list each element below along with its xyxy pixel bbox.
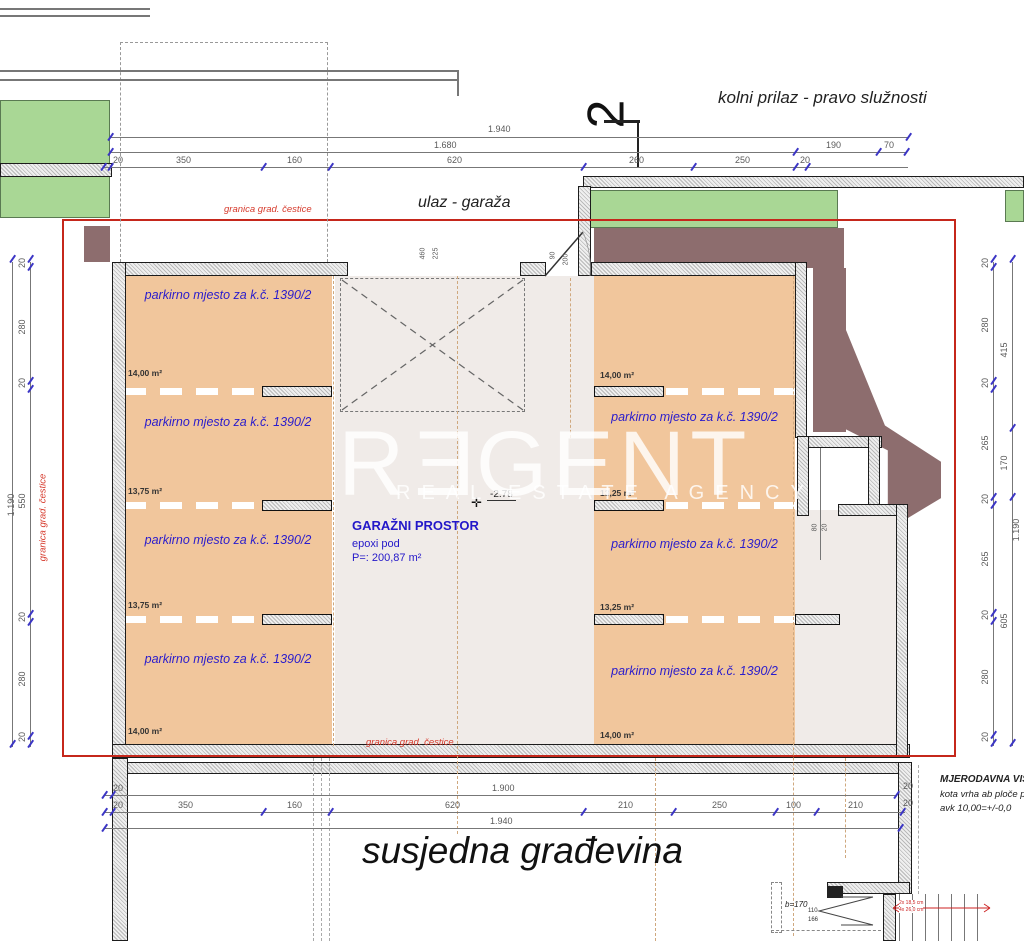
dim-label: 200 [563,245,570,275]
note-kota: kota vrha ab ploče pr [940,789,1024,800]
plot-boundary-bottom [62,755,956,757]
axis-line [457,276,458,834]
neighbor-wall-top-right [583,176,1024,188]
hidden-wall-dashed [329,758,330,941]
dim-label: 620 [445,800,460,810]
stall-area-label: 13,25 m² [600,602,634,612]
dim-line [1012,262,1013,746]
dim-label: 280 [17,312,27,342]
dim-label: 20 [17,602,27,632]
dim-label: 20 [980,600,990,630]
stall-area-label: 13,25 m² [600,488,634,498]
garage-area: P=: 200,87 m² [352,552,421,564]
ulaz-garaza-label: ulaz - garaža [418,194,511,212]
divider-wall-stub [262,614,332,625]
stall-area-label: 14,00 m² [128,368,162,378]
dim-label: 1.190 [1011,515,1021,545]
dim-line [104,812,905,813]
hidden-wall-dashed [321,758,322,941]
wall-bottom-second [112,762,910,774]
divider-wall-stub [795,614,840,625]
wall-top-right [591,262,797,276]
stair-label-n1: 110 [808,908,818,914]
section-marker-line [604,120,640,123]
elevation-marker-icon: ✛ [471,495,482,511]
dim-label: 280 [17,664,27,694]
stair-label-b: b=170 [785,900,807,909]
garage-lower-right-floor [795,510,896,746]
dim-label: 250 [712,800,727,810]
dim-label: 1.940 [488,124,511,134]
dim-line [104,795,896,796]
reference-line [820,448,821,560]
dim-label: 20 [17,368,27,398]
dim-label: 210 [848,800,863,810]
site-line [0,15,150,17]
divider-wall-stub [262,386,332,397]
dim-line [110,137,908,138]
dim-label: 20 [903,798,913,808]
stall-area-label: 14,00 m² [600,370,634,380]
stall-area-label: 13,75 m² [128,486,162,496]
plot-boundary-right [954,219,956,757]
axis-line [333,276,334,746]
dim-label: 265 [980,544,990,574]
neighbor-wall-left [0,163,112,177]
dim-label: 350 [178,800,193,810]
section-marker-2: 2 [576,100,636,129]
dim-label: 265 [980,428,990,458]
divider-wall-stub [594,500,664,511]
garage-door-zone-cross [340,278,525,412]
wall-right-column [795,262,807,438]
divider-wall-stub [594,386,664,397]
dim-line [30,262,31,747]
lawn-right [588,190,838,228]
dim-label: 170 [999,448,1009,478]
dim-label: 1.940 [490,816,513,826]
wall-top-left [112,262,348,276]
stall-area-label: 13,75 m² [128,600,162,610]
dim-label: 20 [980,368,990,398]
dim-label: 80 [812,513,819,543]
site-line [0,70,458,72]
dim-label: 20 [980,248,990,278]
divider-wall-stub [594,614,664,625]
parking-label: parkirno mjesto za k.č. 1390/2 [124,533,332,547]
dim-label: 1.900 [492,783,515,793]
dim-label: 280 [980,662,990,692]
note-mjerodavna: MJERODAVNA VIS [940,774,1024,785]
dim-label: 190 [826,140,841,150]
note-avk: avk 10,00=+/-0,0 [940,803,1011,814]
plot-boundary-left [62,219,64,757]
parking-label: parkirno mjesto za k.č. 1390/2 [124,288,332,302]
lawn-left [0,100,110,218]
dim-label: 20 [903,781,913,791]
boundary-label-top: granica grad. čestice [224,204,312,215]
elevation-level: -2.78 [487,489,516,501]
parking-label: parkirno mjesto za k.č. 1390/2 [124,415,332,429]
dim-label: 280 [980,310,990,340]
boundary-label-left: granica grad. čestice [38,463,49,573]
parking-label: parkirno mjesto za k.č. 1390/2 [594,664,795,678]
parking-label: parkirno mjesto za k.č. 1390/2 [594,537,795,551]
dim-label: 160 [287,800,302,810]
dim-label: 210 [618,800,633,810]
dim-label: 70 [884,140,894,150]
dim-label: 20 [980,722,990,752]
parking-label: parkirno mjesto za k.č. 1390/2 [124,652,332,666]
axis-line [793,276,794,936]
dim-label: 20 [980,484,990,514]
dim-label: 620 [447,155,462,165]
stair-dashed-line [918,765,919,894]
axis-line [570,278,571,438]
wall-right-outer [896,504,908,758]
building-mass-right-strip [813,268,846,432]
dim-label: 20 [17,722,27,752]
parking-label: parkirno mjesto za k.č. 1390/2 [594,410,795,424]
dim-label: 460 [420,239,427,269]
dim-label: 160 [287,155,302,165]
dim-label: 20 [822,513,829,543]
garage-floor-type: epoxi pod [352,538,400,550]
dim-label: 20 [113,155,123,165]
dim-label: 350 [176,155,191,165]
parking-stall [594,509,795,616]
hidden-wall-dashed [313,758,314,941]
parking-stall [594,623,795,746]
susjedna-gradevina-label: susjedna građevina [362,830,683,872]
dim-label: 415 [999,335,1009,365]
lawn-far-right [1005,190,1024,222]
dim-line [103,167,908,168]
dim-label: 90 [550,241,557,271]
site-line [457,70,459,96]
site-line [0,79,458,81]
dim-label: 1.190 [6,490,16,520]
dim-label: 100 [786,800,801,810]
stair-step-note: 4x 26,0 cm [899,907,923,913]
garage-title: GARAŽNI PROSTOR [352,518,479,533]
site-line [0,8,150,10]
building-mass-top-left [84,226,110,262]
dim-label: 20 [17,248,27,278]
dim-label: 550 [17,486,27,516]
floor-plan-canvas: 2 1.940 1.680 190 70 20 350 160 620 260 … [0,0,1024,941]
stall-area-label: 14,00 m² [128,726,162,736]
stair-dashed-outline [771,882,782,933]
kolni-prilaz-label: kolni prilaz - pravo služnosti [718,88,927,108]
stall-area-label: 14,00 m² [600,730,634,740]
boundary-label-bottom: granica grad. čestice [366,737,454,748]
dim-label: 225 [433,239,440,269]
axis-line [845,758,846,858]
dim-line [110,152,906,153]
stair-direction-arrow [813,893,885,931]
divider-wall-stub [262,500,332,511]
room-wall-left [797,436,809,516]
stair-step-note: 2x 18,5 cm [899,900,923,906]
dim-label: 605 [999,606,1009,636]
dim-label: 260 [629,155,644,165]
dim-label: 1.680 [434,140,457,150]
utility-room-floor [805,444,873,508]
wall-left [112,262,126,758]
dim-line [104,828,900,829]
dim-label: 250 [735,155,750,165]
stair-label-n2: 166 [808,917,818,923]
